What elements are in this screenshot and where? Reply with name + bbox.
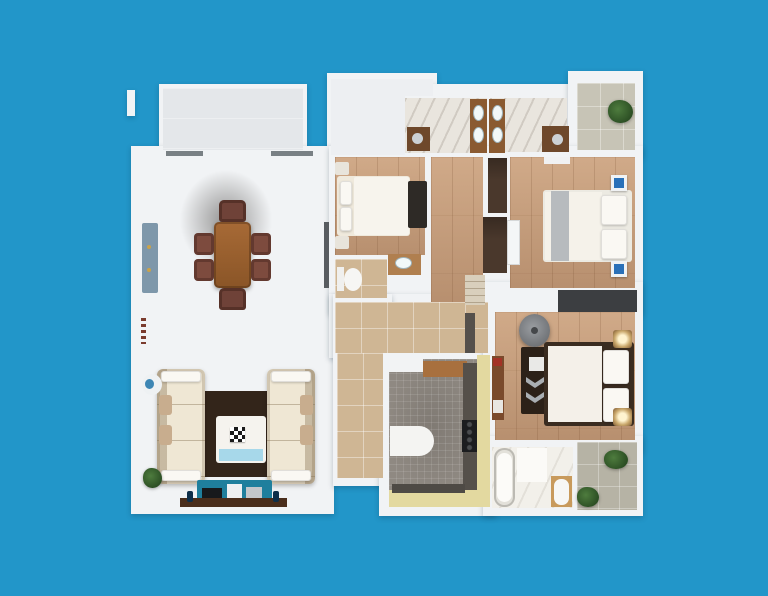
sofa-right-pillow-top	[271, 371, 311, 382]
bedroom-2-pillow-1	[601, 195, 627, 225]
living-plant	[143, 468, 162, 488]
bedroom-2-nightstand-blue-bottom	[611, 261, 627, 277]
master-pillow-1	[603, 350, 629, 384]
master-console-red-box	[493, 358, 502, 366]
living-window-1	[166, 151, 203, 156]
bedroom-2-pillow-2	[601, 229, 627, 259]
sofa-right-cushion-1	[300, 395, 313, 415]
wc-toilet-bowl	[344, 268, 362, 291]
wardrobe-upper	[488, 158, 507, 213]
hallway-door-mat	[465, 313, 475, 353]
master-bath-toilet	[554, 479, 569, 505]
balcony-bottom-plant-1	[604, 450, 628, 469]
dining-chair-east-2	[251, 259, 271, 281]
balcony-bottom-plant-2	[577, 487, 599, 507]
wardrobe-lower	[483, 217, 507, 273]
blue-sideboard	[142, 223, 158, 293]
sliding-door-white	[507, 220, 520, 265]
kitchen-base-cabinet	[392, 484, 465, 493]
dining-chair-west-1	[194, 233, 214, 255]
sofa-right-pillow-bottom	[271, 470, 311, 481]
bathroom-1-basin-2	[473, 127, 484, 143]
papasan-center	[531, 327, 538, 334]
kitchen-cooktop	[462, 420, 477, 452]
dining-chair-north	[219, 200, 246, 222]
kitchen-fridge	[389, 358, 423, 372]
master-bath-tub-inner	[497, 453, 512, 502]
bedroom-1-pillow-2	[340, 207, 352, 231]
living-wall-vent	[141, 318, 146, 344]
wc-toilet-tank	[337, 267, 344, 291]
bedroom-2-nightstand-blue-top	[611, 175, 627, 191]
sofa-left-cushion-2	[159, 425, 172, 445]
outer-wall-fragment	[127, 90, 135, 116]
console-vase-left	[187, 491, 193, 502]
console-wood-shelf	[180, 498, 287, 507]
kitchen-peninsula	[390, 426, 434, 456]
bathroom-2-sink	[552, 134, 563, 145]
sideboard-knob-1	[147, 245, 151, 249]
balcony-left-floor	[163, 88, 303, 150]
floor-plan	[0, 0, 768, 596]
master-wardrobe-strip	[558, 290, 637, 312]
terrace-floor-strip	[405, 79, 433, 96]
master-console-drawer	[493, 400, 503, 413]
bedroom-1-nightstand-top	[335, 162, 349, 175]
kitchen-wood-counter	[423, 361, 467, 377]
living-east-doorway	[324, 222, 329, 288]
hallway-vertical-floor	[337, 353, 383, 478]
bedroom-2-runner	[551, 191, 569, 261]
bedroom-1-nightstand-bottom	[335, 236, 349, 249]
balcony-right-plant	[608, 100, 633, 123]
bedroom-1-rug	[408, 181, 427, 228]
closet-shelves	[465, 275, 485, 305]
bathroom-2-basin-1	[492, 105, 503, 121]
dining-chair-west-2	[194, 259, 214, 281]
dining-chair-south	[219, 288, 246, 310]
bathroom-2-basin-2	[492, 127, 503, 143]
living-window-2	[271, 151, 313, 156]
master-nightstand-lamp-bottom	[613, 408, 632, 426]
bedroom-1-pillow-1	[340, 181, 352, 205]
bedroom-1-duvet	[354, 177, 409, 235]
round-table-blue-accent	[145, 379, 154, 389]
master-nightstand-lamp-top	[613, 330, 632, 348]
bathroom-1-basin-1	[473, 105, 484, 121]
dining-table	[214, 222, 251, 288]
bedroom-2-dresser	[544, 157, 570, 164]
kitchen-yellow-strip-right	[477, 355, 490, 507]
sofa-left-cushion-1	[159, 395, 172, 415]
coffee-table-blue-tray	[219, 449, 263, 461]
sofa-left-pillow-bottom	[161, 470, 201, 481]
sofa-right-cushion-2	[300, 425, 313, 445]
sofa-left-pillow-top	[161, 371, 201, 382]
dining-chair-east-1	[251, 233, 271, 255]
wc-niche-sink	[395, 257, 412, 269]
terrace-floor	[331, 79, 405, 155]
console-vase-right	[273, 491, 279, 502]
master-bath-shower-mat	[517, 448, 547, 482]
sideboard-knob-2	[147, 268, 151, 272]
chessboard	[230, 427, 245, 442]
master-dresser-frame	[529, 357, 545, 371]
bathroom-1-sink	[412, 133, 423, 144]
master-bed-duvet	[548, 346, 602, 422]
